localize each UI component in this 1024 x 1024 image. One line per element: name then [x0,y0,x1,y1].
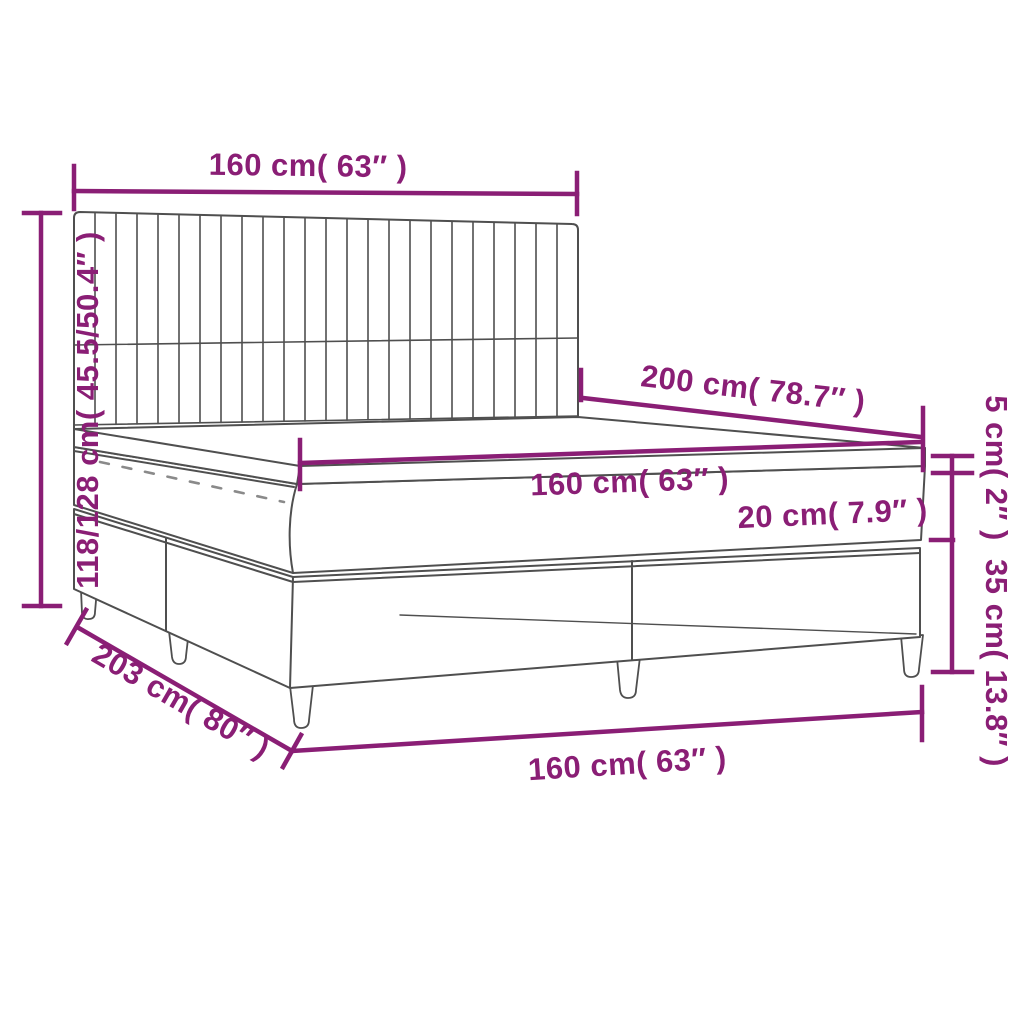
leg [290,685,313,728]
dim-label-overall-height: 118/128 cm( 45.5/50.4″ ) [70,231,105,589]
dim-label-headboard-width: 160 cm( 63″ ) [209,147,408,184]
dim-label-base-height: 35 cm( 13.8″ ) [979,559,1014,767]
bed-dimension-diagram: 160 cm( 63″ ) 118/128 cm( 45.5/50.4″ ) 2… [0,0,1024,1024]
dim-label-topper-thickness: 5 cm( 2″ ) [979,395,1014,541]
dim-label-mattress-width: 160 cm( 63″ ) [530,461,730,503]
leg [617,657,640,698]
dim-label-bed-width: 160 cm( 63″ ) [527,740,728,787]
dim-line [292,712,922,751]
leg [901,635,923,677]
bed-line-art [74,212,925,728]
dim-line [74,191,577,194]
dim-tick [67,610,86,643]
dim-right-heights [931,456,972,672]
dim-overall-height [24,213,60,606]
dim-bed-width [292,687,922,751]
